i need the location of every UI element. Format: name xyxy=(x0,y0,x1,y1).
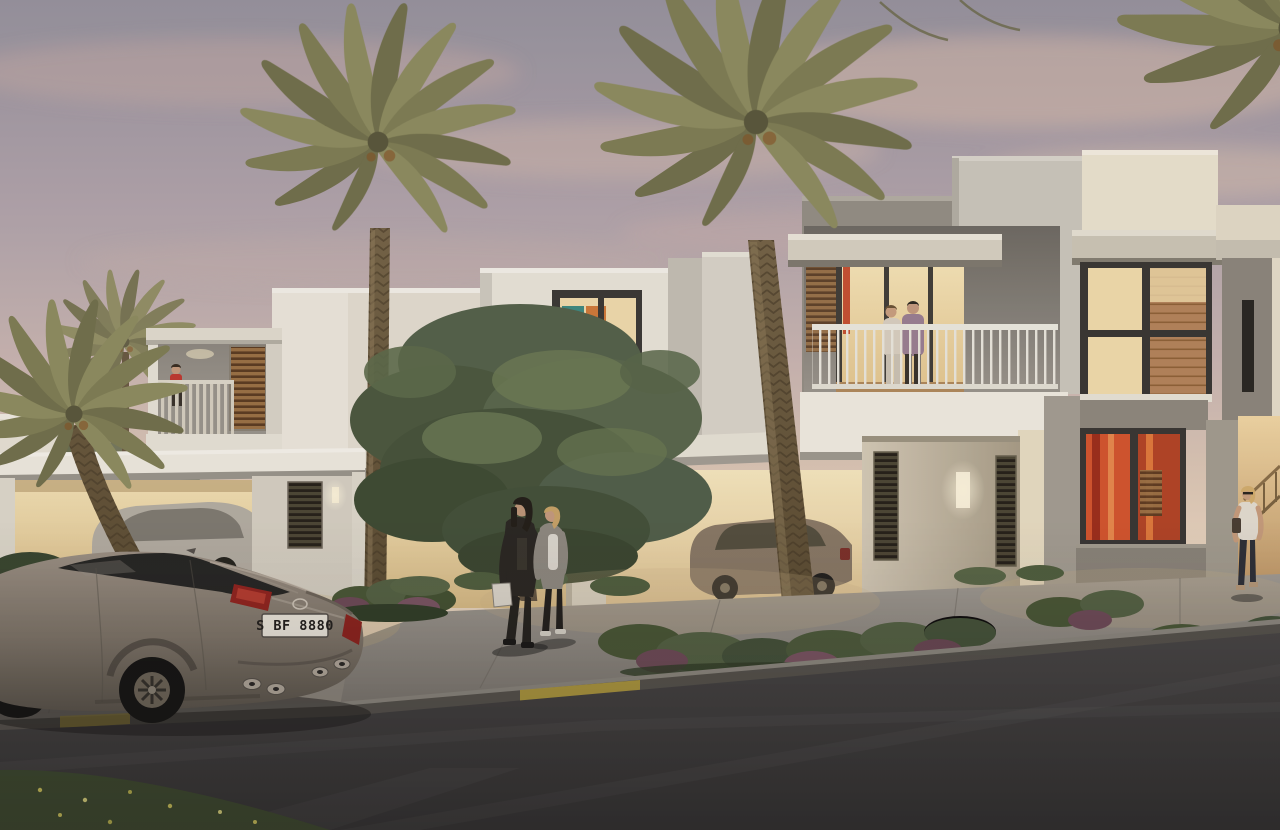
vignette xyxy=(0,0,1280,830)
render-scene: S BF 8880 xyxy=(0,0,1280,830)
architectural-rendering: S BF 8880 xyxy=(0,0,1280,830)
